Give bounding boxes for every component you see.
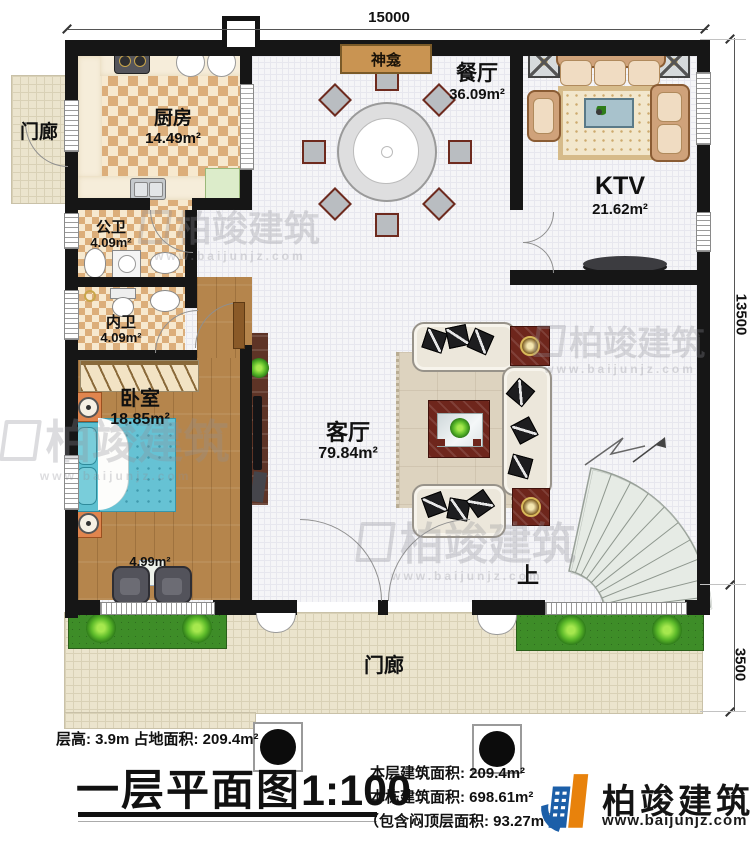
window (64, 213, 79, 249)
plan-title-row: 一层平面图1:100 (76, 756, 411, 818)
title-underline-thin (78, 821, 377, 822)
ktv-armchair-icon (527, 90, 561, 142)
kitchen-sink-icon (130, 178, 166, 200)
window (100, 602, 215, 615)
brand-url: www.baijunjz.com (602, 812, 750, 829)
area-attic: （包含闷顶层面积: 93.27m²） (364, 810, 564, 831)
watermark: 柏竣建筑 www.baijunjz.com (535, 316, 705, 376)
plan-title: 一层平面图 (76, 767, 301, 815)
room-name: 卧室 (95, 388, 185, 411)
dimension-top-value: 15000 (358, 9, 420, 26)
coffee-table-icon (428, 400, 490, 458)
room-label-dining: 餐厅 36.09m² (432, 62, 522, 103)
extension-line (700, 39, 746, 40)
plant-icon (450, 418, 470, 438)
armchair-icon (154, 566, 192, 604)
dimension-line-top (68, 29, 708, 30)
room-area: 4.09m² (90, 331, 152, 346)
room-area: 18.85m² (95, 411, 185, 429)
watermark: 柏竣建筑 www.baijunjz.com (358, 508, 576, 583)
room-name: KTV (575, 172, 665, 201)
brand-logo-icon (536, 770, 598, 834)
armchair-icon (112, 566, 150, 604)
room-label-ktv: KTV 21.62m² (575, 172, 665, 218)
window (696, 72, 711, 145)
dimension-line-right (734, 38, 735, 712)
room-area: 4.09m² (80, 236, 142, 251)
title-underline (78, 812, 377, 817)
brand-glyph-icon (355, 522, 396, 562)
washer-icon (112, 250, 141, 279)
room-label-private-bath: 内卫 4.09m² (90, 314, 152, 346)
chimney (222, 16, 260, 47)
wall-bath-divider (78, 277, 185, 287)
watermark: 柏竣建筑 www.baijunjz.com (140, 200, 320, 263)
room-label-bedroom-bay: 4.99m² (118, 555, 182, 570)
plant-icon (86, 613, 116, 643)
nightstand-icon (74, 508, 102, 538)
room-label-living: 客厅 79.84m² (308, 420, 388, 464)
kitchen-sliding-door (240, 84, 254, 170)
room-label-kitchen: 厨房 14.49m² (118, 108, 228, 147)
bedroom-door-leaf (233, 302, 245, 349)
dining-chair-icon (302, 140, 326, 164)
room-name: 厨房 (118, 108, 228, 130)
tv-icon (253, 396, 262, 470)
wall-bottom (65, 600, 100, 615)
area-current: 本层建筑面积: 209.4m² (370, 762, 525, 783)
cutting-board-icon (205, 168, 240, 202)
plant-icon (182, 613, 212, 643)
dining-table-icon (337, 102, 437, 202)
room-label-public-bath: 公卫 4.09m² (80, 219, 142, 251)
room-area: 4.99m² (118, 555, 182, 570)
front-porch-apron (65, 713, 255, 728)
room-label-front-porch: 门廊 (352, 655, 416, 678)
brand-glyph-icon (0, 420, 41, 461)
wall-bedroom-right (240, 345, 252, 600)
room-label-bedroom: 卧室 18.85m² (95, 388, 185, 429)
basin-icon (150, 290, 180, 312)
brand-glyph-icon (138, 210, 173, 244)
toilet-icon (84, 248, 106, 278)
room-name: 餐厅 (432, 62, 522, 86)
room-name: 内卫 (90, 314, 152, 331)
dimension-right-main-value: 13500 (733, 286, 750, 344)
room-name: 客厅 (308, 420, 388, 445)
brand-glyph-icon (533, 325, 567, 357)
extension-line (700, 711, 746, 712)
shower-icon (84, 290, 96, 302)
dimension-tick (725, 707, 735, 717)
window (545, 602, 687, 615)
room-area: 21.62m² (575, 201, 665, 218)
room-area: 79.84m² (308, 445, 388, 463)
wall-bottom (685, 600, 710, 615)
area-total: 本栋建筑面积: 698.61m² (370, 786, 533, 807)
floor-plan-canvas: 神龛 柏竣建筑 www.baijunjz.com 柏竣建筑 www.baijun… (0, 0, 750, 841)
dining-chair-icon (375, 213, 399, 237)
shrine-label: 神龛 (371, 49, 401, 70)
extension-line (700, 584, 746, 585)
dining-chair-icon (448, 140, 472, 164)
ktv-chaise-icon (650, 84, 690, 162)
stair-break-line (585, 438, 645, 465)
ktv-sofa-cushion (594, 60, 626, 86)
room-area: 14.49m² (118, 130, 228, 147)
stair-up-label: 上 (514, 563, 542, 588)
window (696, 212, 711, 252)
room-label-left-porch: 门廊 (14, 122, 64, 144)
room-area: 36.09m² (432, 86, 522, 103)
wall-kitchen-right (240, 56, 252, 84)
ktv-coffee-table-icon (584, 98, 634, 128)
plant-icon (249, 358, 269, 378)
dimension-right-porch-value: 3500 (732, 641, 749, 689)
floor-info: 层高: 3.9m 占地面积: 209.4m² (56, 728, 259, 749)
entry-door-post (378, 600, 388, 615)
wall-bottom (472, 600, 545, 615)
room-name: 公卫 (80, 219, 142, 236)
shrine: 神龛 (340, 44, 432, 74)
ktv-sofa-cushion (628, 60, 660, 86)
window (64, 290, 79, 340)
ktv-sofa-cushion (560, 60, 592, 86)
kitchen-counter-left (78, 56, 102, 178)
